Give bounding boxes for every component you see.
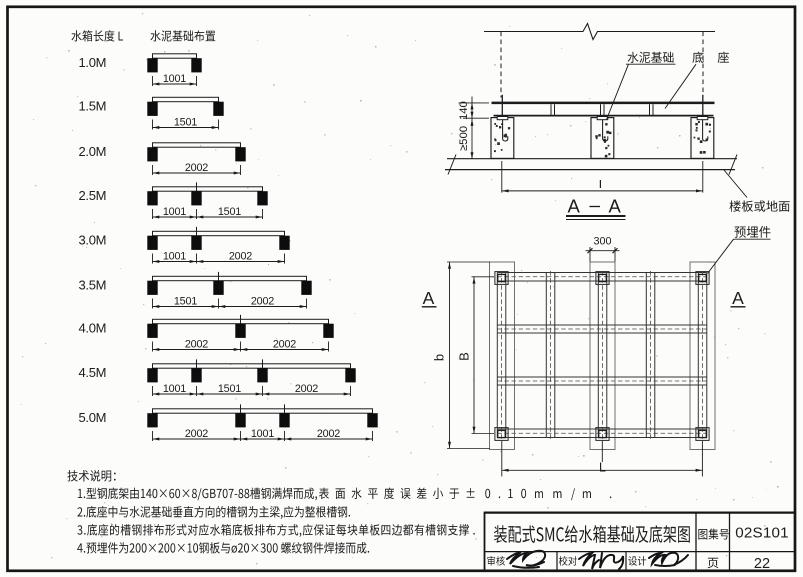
- svg-text:2002: 2002: [273, 339, 296, 351]
- svg-text:2002: 2002: [185, 162, 208, 174]
- svg-text:1001: 1001: [163, 251, 186, 263]
- svg-text:1.5M: 1.5M: [79, 98, 107, 113]
- svg-text:2.0M: 2.0M: [79, 144, 107, 159]
- svg-text:A: A: [609, 195, 622, 216]
- svg-text:1001: 1001: [251, 428, 274, 440]
- svg-text:2002: 2002: [185, 339, 208, 351]
- svg-text:3.0M: 3.0M: [79, 232, 107, 247]
- svg-text:4.0M: 4.0M: [79, 320, 107, 335]
- svg-text:4.5M: 4.5M: [79, 365, 107, 380]
- svg-text:2.5M: 2.5M: [79, 188, 107, 203]
- svg-text:2002: 2002: [229, 251, 252, 263]
- svg-text:1001: 1001: [163, 73, 186, 85]
- svg-text:A: A: [568, 195, 581, 216]
- svg-text:140: 140: [458, 101, 470, 120]
- svg-text:2002: 2002: [317, 428, 340, 440]
- svg-text:B: B: [456, 352, 471, 361]
- svg-text:1501: 1501: [174, 296, 197, 308]
- svg-text:3.5M: 3.5M: [79, 277, 107, 292]
- svg-text:02S101: 02S101: [735, 525, 789, 542]
- svg-text:A: A: [732, 288, 744, 308]
- svg-text:≥500: ≥500: [458, 126, 470, 151]
- svg-text:2002: 2002: [185, 428, 208, 440]
- svg-text:300: 300: [593, 236, 611, 248]
- svg-text:1.0M: 1.0M: [79, 55, 107, 70]
- svg-text:1501: 1501: [218, 206, 241, 218]
- svg-text:1001: 1001: [163, 383, 186, 395]
- svg-text:2002: 2002: [251, 296, 274, 308]
- svg-text:b: b: [431, 354, 446, 361]
- svg-text:1501: 1501: [174, 117, 197, 129]
- svg-text:A: A: [423, 288, 435, 308]
- svg-text:1501: 1501: [218, 383, 241, 395]
- svg-text:1001: 1001: [163, 206, 186, 218]
- svg-text:5.0M: 5.0M: [79, 410, 107, 425]
- svg-text:2002: 2002: [295, 383, 318, 395]
- svg-text:L: L: [599, 461, 606, 475]
- svg-text:22: 22: [754, 556, 770, 572]
